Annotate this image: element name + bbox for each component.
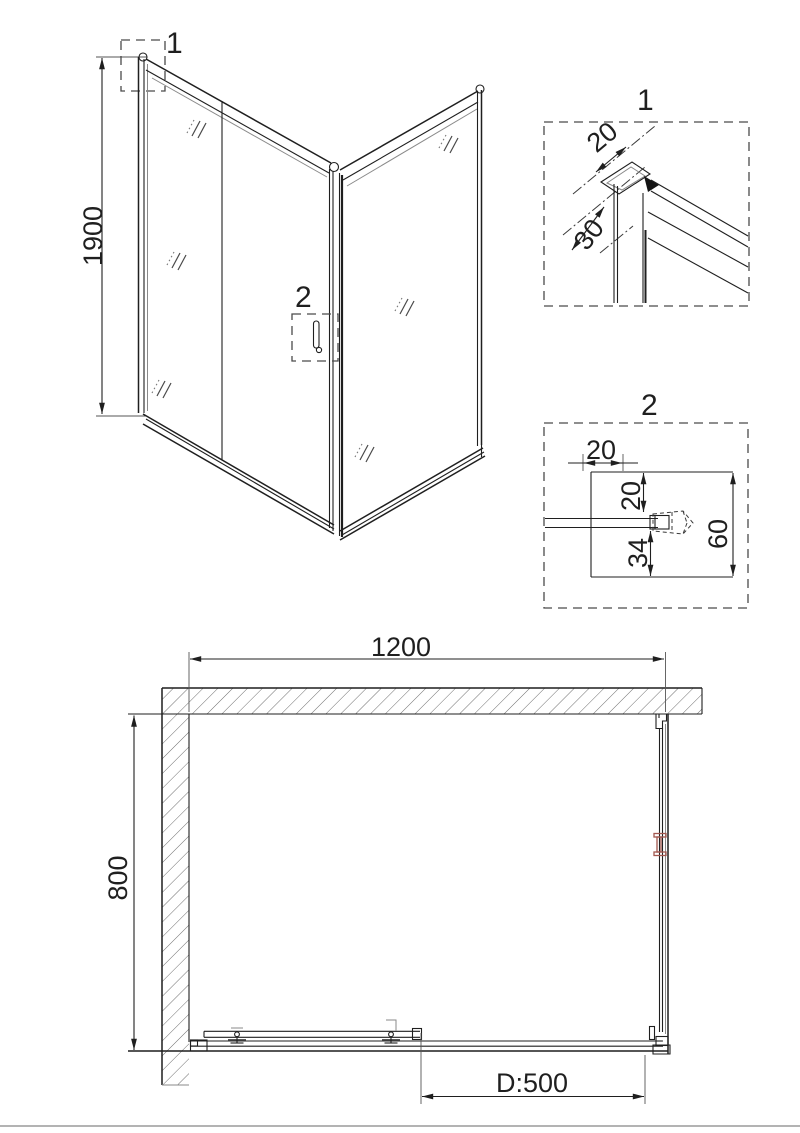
dim-1200-label: 1200 [371,632,431,662]
bottom-rail-left-face [143,414,334,534]
elevation-view: 1900 1 [78,27,485,540]
detail-1-title: 1 [637,84,654,117]
detail-2-view: 2 20 20 34 60 [544,389,748,608]
plan-view: 1200 800 [103,632,702,1104]
detail-1-dim-20-label: 20 [581,116,623,158]
bottom-track [128,1040,669,1051]
bottom-rail-right-face [340,445,485,540]
callout-1: 1 [121,27,183,91]
side-panel-wall-profile [656,714,667,729]
detail-1-corner-profile [601,162,748,303]
dimension-depth-800: 800 [103,716,134,1051]
door-handle [314,321,322,353]
detail-1-dim-30: 30 [568,207,610,256]
detail-2-dim-width-label: 20 [586,435,616,465]
detail-2-dim-width: 20 [568,435,638,471]
corner-post [330,169,343,537]
detail-1-dim-20: 20 [581,116,626,172]
detail-2-glass-panel [545,516,669,530]
detail-2-dim-bottom-label: 34 [623,538,653,568]
top-rail-left-face [146,59,331,177]
detail-2-handle-knob [653,511,693,534]
callout-1-label: 1 [166,27,183,60]
detail-2-dim-top-label: 20 [616,481,646,511]
dim-800-label: 800 [103,855,133,900]
technical-drawing: 1900 1 [0,0,800,1133]
dim-d500-label: D:500 [496,1068,568,1098]
detail-2-dim-height: 60 [703,473,733,576]
dimension-height-1900: 1900 [78,57,147,416]
detail-1-dim-30-label: 30 [568,213,610,255]
detail-2-dim-bottom: 34 [623,531,653,576]
wall-hatching [128,688,702,1085]
top-right-joint [476,85,484,93]
detail-2-dim-height-label: 60 [703,519,733,549]
left-wall-profile [139,53,148,413]
detail-2-box [544,423,748,608]
side-panel [656,714,668,1054]
detail-1-view: 1 20 30 [544,84,749,306]
right-edge-profile [478,90,482,446]
detail-2-dim-top: 20 [616,473,646,512]
apex-joint [330,163,339,172]
callout-2-label: 2 [295,281,312,314]
detail-2-title: 2 [641,389,658,422]
dimension-door-500: D:500 [421,1033,645,1104]
dim-1900-label: 1900 [78,206,108,266]
door-hook [386,1020,396,1031]
